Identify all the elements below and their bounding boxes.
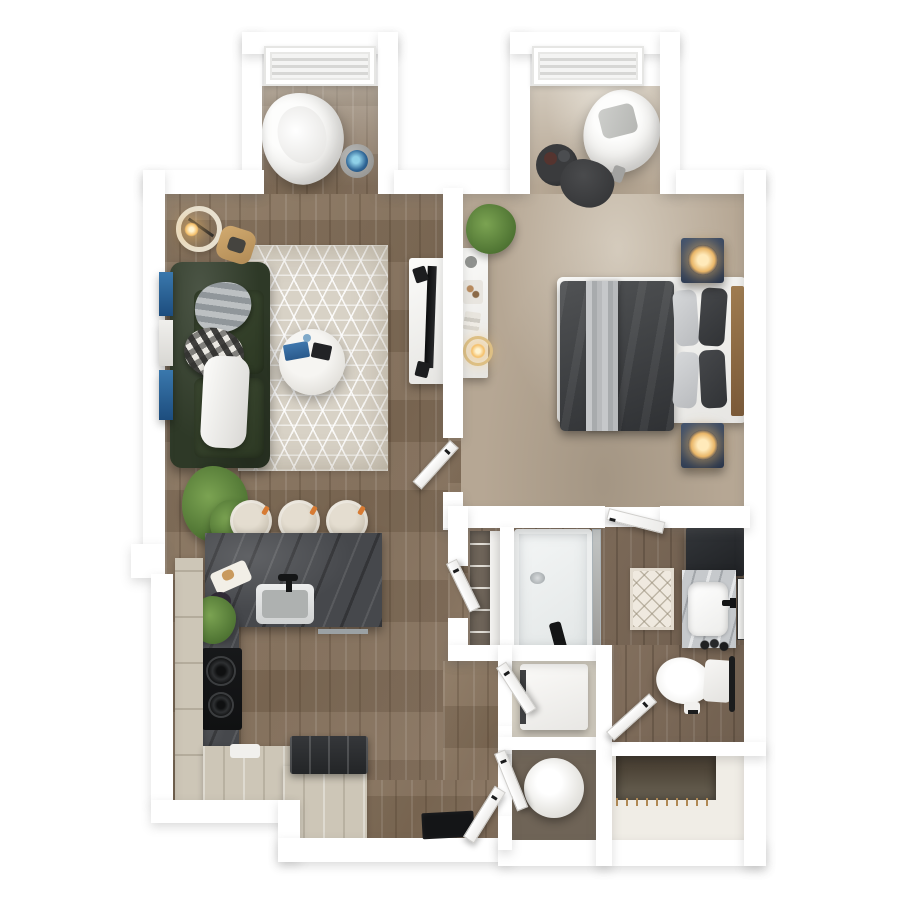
window-living-blinds [270,52,370,80]
arc-floor-lamp-ring [176,206,222,252]
side-table-cup-2 [558,150,570,162]
wall-closet-top [612,742,766,756]
art-frame-white [159,320,173,366]
console-globe-lamp-glow [470,343,486,359]
floor-plan [0,0,900,900]
refrigerator [290,736,368,774]
art-frame-blue-1 [159,272,173,316]
wall-divider-living-bedroom [443,188,463,438]
bath-mat [630,568,674,630]
vanity-accessories [700,638,732,652]
bed-throw-runner [586,281,618,431]
vanity-faucet-spout [730,598,736,608]
nightstand-lamp-bottom [688,430,718,460]
console-books [463,311,481,331]
wall-cells-right [596,645,612,866]
console-cups [466,284,480,300]
vanity-sink [688,582,728,636]
wall-left-lower [151,574,173,804]
art-frame-blue-2 [159,370,173,420]
wall-cells-left-3 [498,816,512,850]
vanity-upper-cabinet [686,528,744,576]
wall-bath-top-right [660,506,750,528]
headboard [731,286,744,416]
wall-nook2-left [510,32,530,194]
console-vase [465,256,477,268]
sofa-throw-blanket [200,355,251,449]
kitchen-faucet-neck [286,578,292,592]
stove-burner-2 [208,692,234,718]
coffee-table [279,329,345,395]
nook-blue-bowl [346,150,368,172]
bed-pillow-light-2 [672,351,700,409]
water-heater [524,758,584,818]
closet-hanging-clothes [616,756,716,800]
wall-bottom-right [498,840,766,866]
wall-linen-divider [500,527,514,657]
arc-floor-lamp-bulb [184,222,199,237]
coffee-cup [303,334,311,342]
wall-left-notch [131,544,165,578]
window-bedroom-blinds [538,52,638,80]
wall-bath-left-upper [448,506,468,566]
kitchen-sink-basin [262,590,308,618]
washer-dryer [520,664,588,730]
wall-cells-mid [498,737,610,750]
bed-pillow-dark-1 [698,287,728,347]
toilet-paper-bracket [688,710,698,714]
wall-bath-bottom [448,645,612,661]
cabinets-left [175,558,203,802]
closet-hangers [616,798,716,806]
bed-pillow-dark-2 [699,349,728,408]
side-table-cup-1 [544,152,557,165]
dishwasher-handle [318,629,368,634]
shower-valve [530,572,545,584]
wall-bottom-mid [278,838,512,862]
stove-burner-1 [206,656,236,686]
towel-bar [729,656,735,712]
bed-pillow-light-1 [672,289,700,347]
wall-bottom-left [151,800,293,823]
shower-glass-panel [592,529,601,653]
nightstand-lamp-top [688,245,718,275]
small-appliance [230,744,260,758]
